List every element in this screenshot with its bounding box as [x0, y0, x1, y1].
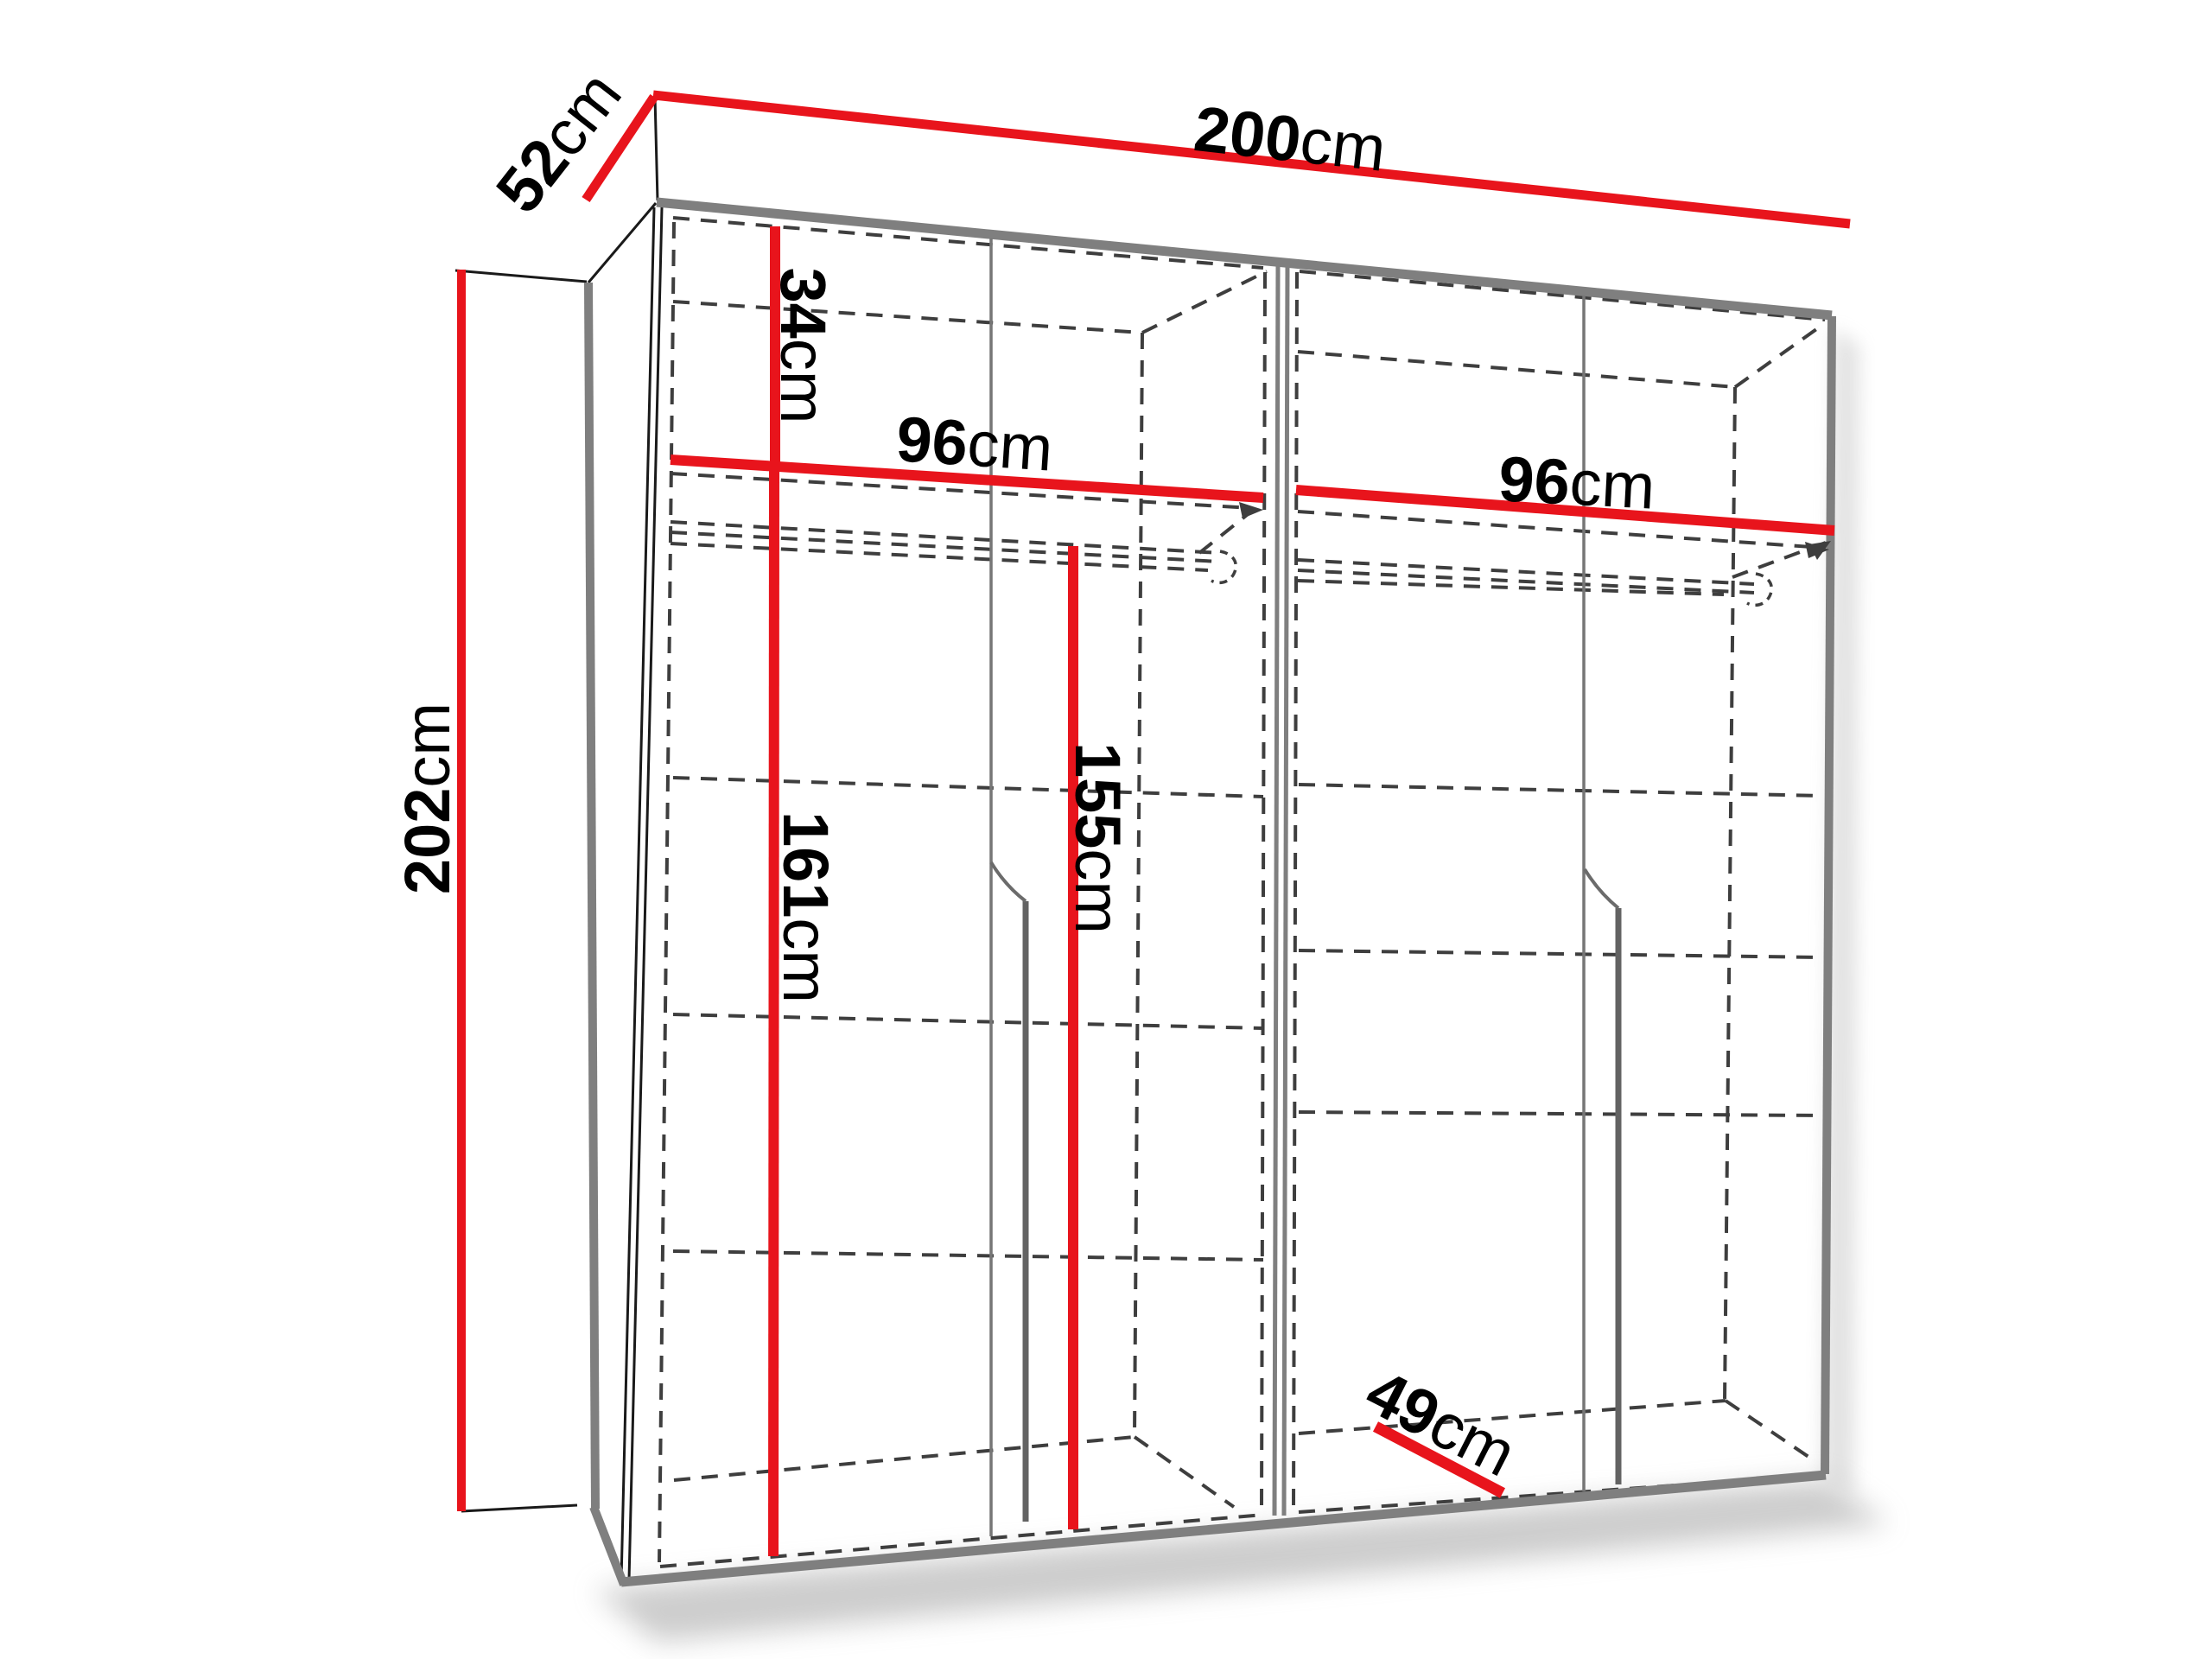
- dimension-label-shelf-right-96cm-text: 96cm: [1497, 442, 1656, 522]
- dashed-right-upper-shelf-back: [1298, 352, 1735, 387]
- dimension-label-depth-52cm: 52cm: [482, 58, 635, 226]
- dashed-divider-left-face: [1262, 272, 1265, 1512]
- wardrobe-dimension-diagram: 200cm52cm202cm34cm96cm96cm161cm155cm49cm: [0, 0, 2212, 1659]
- dashed-left-mid-shelf-1: [673, 778, 1263, 797]
- extension-line-top: [455, 270, 587, 282]
- dashed-right-back-corner-vertical: [1725, 387, 1735, 1401]
- dashed-left-rod-top: [671, 522, 1220, 553]
- dimension-label-shelf-left-96cm-text: 96cm: [894, 403, 1055, 485]
- dashed-right-mid-shelf-2: [1299, 950, 1823, 957]
- dimension-label-width-200cm-text: 200cm: [1191, 92, 1389, 185]
- dimension-label-depth-52cm-text: 52cm: [482, 58, 635, 226]
- dashed-left-top-back-edge: [673, 218, 1263, 268]
- dashed-right-bottom-diagonal: [1726, 1401, 1814, 1460]
- dimension-label-interior-161cm-text: 161cm: [771, 811, 842, 1003]
- dashed-right-back-corner-diagonal-top: [1735, 323, 1825, 387]
- dashed-left-bottom-diagonal: [1135, 1437, 1234, 1507]
- dimension-label-depth-49cm-text: 49cm: [1356, 1355, 1528, 1490]
- dashed-left-rod-bottom: [671, 532, 1220, 562]
- dashed-left-mid-shelf-3: [673, 1251, 1263, 1260]
- extension-line-bottom: [461, 1505, 577, 1511]
- dimension-label-width-200cm: 200cm: [1191, 92, 1389, 185]
- dashed-left-upper-shelf-back: [673, 302, 1142, 333]
- dashed-right-mid-shelf-1: [1299, 785, 1823, 796]
- dimension-label-shelf-right-96cm: 96cm: [1497, 442, 1656, 522]
- dashed-divider-right-face: [1294, 272, 1297, 1512]
- dashed-left-mid-shelf-2: [673, 1014, 1263, 1028]
- dimension-line-interior-161: [773, 467, 774, 1556]
- dashed-left-wall-inner: [659, 222, 674, 1562]
- edge-center-divider-b: [1284, 263, 1287, 1516]
- shadow-bottom: [594, 1480, 1889, 1642]
- diagram-stage: 200cm52cm202cm34cm96cm96cm161cm155cm49cm: [0, 0, 2212, 1659]
- arrow-left-shelf: [1239, 502, 1263, 518]
- dimension-label-top-34cm-text: 34cm: [768, 268, 840, 424]
- door-handle-right-curve: [1585, 869, 1618, 908]
- outline-layer: [455, 97, 662, 1580]
- edge-center-divider-a: [1274, 263, 1278, 1516]
- door-handle-left-curve: [991, 862, 1026, 901]
- dimension-label-interior-161cm: 161cm: [771, 811, 842, 1003]
- dimension-label-top-34cm: 34cm: [768, 268, 840, 424]
- dimension-label-depth-49cm: 49cm: [1356, 1355, 1528, 1490]
- dimension-label-shelf-left-96cm: 96cm: [894, 403, 1055, 485]
- edge-side-left-outer: [588, 283, 595, 1509]
- dimension-lines-layer: [461, 95, 1850, 1556]
- edge-front-left-b: [629, 207, 662, 1580]
- edge-front-left-a: [621, 207, 654, 1580]
- dimension-label-rod-155cm: 155cm: [1063, 742, 1135, 934]
- dashed-left-back-corner-diagonal-top: [1142, 271, 1267, 333]
- dimension-label-rod-155cm-text: 155cm: [1063, 742, 1135, 934]
- edge-side-top: [588, 203, 656, 283]
- edge-side-left-chamfer: [594, 1507, 624, 1585]
- dashed-left-back-corner-vertical: [1135, 333, 1142, 1437]
- rod-hook-left: [1211, 551, 1236, 582]
- dashed-left-bottom-back: [674, 1437, 1135, 1480]
- dashed-right-mid-shelf-3: [1299, 1112, 1823, 1116]
- rod-hook-right: [1747, 574, 1771, 605]
- edge-top-face-left: [655, 97, 658, 200]
- dimension-label-height-202cm-text: 202cm: [391, 702, 463, 894]
- dashed-right-top-back-edge: [1300, 271, 1825, 320]
- dimension-label-height-202cm: 202cm: [391, 702, 463, 894]
